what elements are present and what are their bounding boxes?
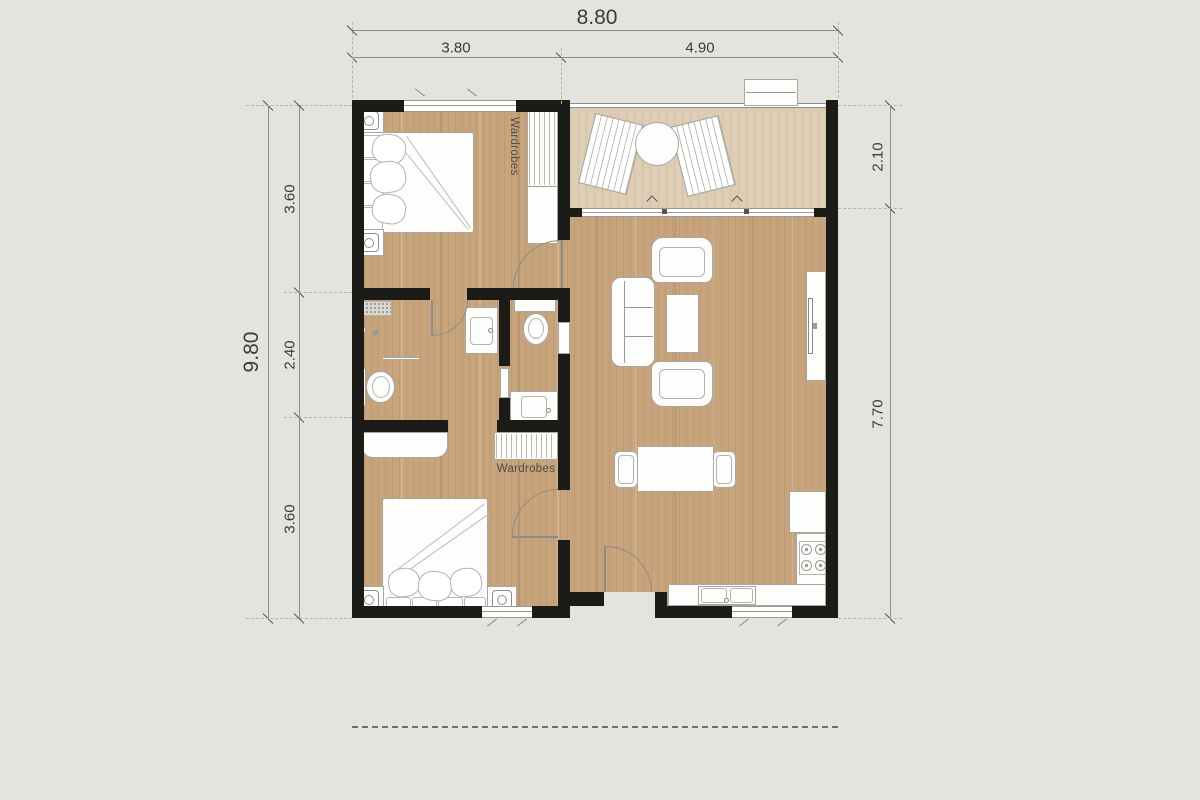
faucet-icon [546,408,551,413]
stove-burner-icon [801,560,812,571]
wardrobe-shelf-line [528,186,557,187]
wall-porch-jog [655,592,667,618]
dimension-line-top-overall [352,30,838,31]
dining-table [637,446,714,492]
floor-plan: Wardrobes Wardrobes [0,0,1200,800]
wall-bedroom1-right [558,100,570,240]
dimension-line-left-overall [268,105,269,618]
sliding-door-end-cap [570,208,582,217]
window-casement-tick [487,618,497,626]
toilet-bowl-inner [372,376,390,398]
wardrobe-clothes-pattern [529,112,556,185]
toilet-bowl-inner [528,318,544,339]
overhang-dashed-line [352,726,838,728]
sofa [611,277,655,367]
sofa-back-line [624,281,625,363]
dim-top-overall: 8.80 [577,6,618,30]
lamp-icon [497,595,507,605]
dim-left-segment-2: 2.40 [282,340,299,369]
extension-line [838,105,902,106]
window-casement-tick [415,88,425,96]
window-jamb [792,606,796,618]
wall-bath-divider-upper [499,300,510,366]
desk [361,432,448,458]
tv-stand [813,323,817,329]
wall-bath-top-left [352,288,430,300]
dim-left-overall: 9.80 [240,332,264,373]
wardrobes-label-bedroom1: Wardrobes [508,117,520,211]
window-glazing-line [478,611,536,612]
faucet-icon [724,598,729,603]
sliding-door-stop [744,209,749,214]
window-kitchen [728,606,796,618]
dimension-line-left-segments [299,105,300,618]
dim-left-segment-1: 3.60 [282,184,299,213]
dimension-line-right [890,105,891,618]
dim-top-segment-1: 3.80 [441,40,470,57]
stove-burner-icon [815,560,826,571]
wall-right [826,100,838,618]
window-bedroom1 [400,100,520,112]
window-bedroom2 [478,606,536,618]
door-leaf-bedroom1 [561,240,563,288]
extension-line [246,105,352,106]
window-jamb [728,606,732,618]
wall-bath-bottom-left [352,420,448,432]
lamp-icon [364,116,374,126]
wardrobe-clothes-pattern [496,434,556,458]
wall-porch-top [570,592,604,606]
stove-burner-icon [815,544,826,555]
wardrobes-label-bedroom2: Wardrobes [488,463,564,475]
coffee-table [666,294,699,353]
armchair-seat [659,369,705,399]
dim-top-segment-2: 4.90 [685,40,714,57]
condenser-divider-line [746,92,796,93]
wall-bath2-right-upper [558,300,570,322]
wall-bath-bottom-right [497,420,570,432]
window-casement-tick [739,618,749,626]
door-bath-divider-closed [500,368,509,398]
sliding-door-rail [582,212,814,213]
round-table [635,122,679,166]
extension-line [561,48,562,104]
door-leaf-bedroom2 [512,536,558,538]
window-jamb [400,100,404,112]
extension-line [838,208,902,209]
extension-line [246,618,352,619]
extension-line [352,22,353,98]
sliding-door-end-cap [814,208,826,217]
dining-chair-seat [618,455,634,484]
window-casement-tick [777,618,787,626]
door-bathroom2-closed [558,322,570,354]
armchair-seat [659,247,705,277]
window-jamb [478,606,482,618]
sliding-door-stop [662,209,667,214]
drain-icon [373,330,378,335]
extension-line [838,618,902,619]
window-glazing-line [400,105,520,106]
lamp-icon [364,595,374,605]
extension-line [284,292,352,293]
sofa-cushion-line [625,336,653,337]
wall-bedroom2-right-lower [558,540,570,618]
sofa-cushion-line [625,307,653,308]
dining-chair-seat [716,455,732,484]
wall-bottom-left [352,606,570,618]
towel-rail [382,357,420,360]
window-jamb [532,606,536,618]
stove-burner-icon [801,544,812,555]
extension-line [838,22,839,98]
wall-bedroom2-right-upper [558,432,570,490]
dimension-line-top-segments [352,57,838,58]
toilet-tank [514,299,556,312]
sink-basin [730,588,753,603]
wash-basin [521,396,547,418]
window-casement-tick [467,88,477,96]
window-jamb [516,100,520,112]
wall-bath-top-right [467,288,570,300]
lamp-icon [364,238,374,248]
window-glazing-line [728,611,796,612]
fridge-counter [789,491,826,533]
dim-left-segment-3: 3.60 [282,504,299,533]
extension-line [284,417,352,418]
window-casement-tick [517,618,527,626]
wall-left [352,100,364,618]
dim-right-segment-1: 2.10 [870,142,887,171]
dim-right-segment-2: 7.70 [870,399,887,428]
faucet-icon [488,328,493,333]
